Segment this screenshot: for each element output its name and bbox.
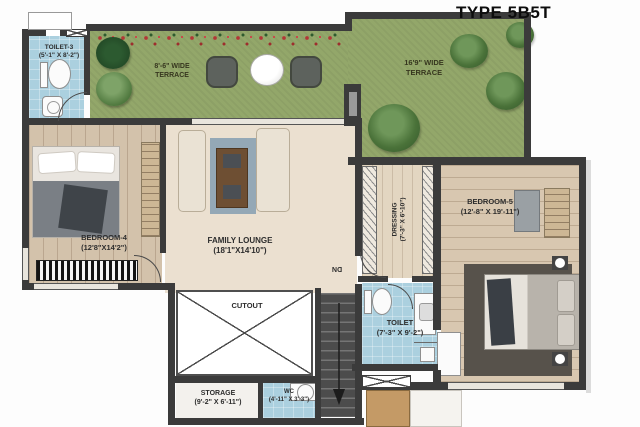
wall [345,12,352,29]
room-dims: (7'-3" X 6'-10") [400,183,408,255]
room-name: DRESSING [392,183,400,255]
room-name-2: TERRACE [386,68,462,78]
toilet-label: TOILET (7'-3" X 9'-2") [364,318,436,338]
basin-bowl [47,101,60,114]
room-name: BEDROOM-4 [50,233,158,243]
bedroom5-label: BEDROOM-5 (12'-8" X 19'-11") [442,197,538,217]
room-name: TOILET-3 [32,44,86,52]
wall [355,284,362,425]
terrace-chair-icon [206,56,238,88]
bedroom5-wardrobe-icon [544,188,570,238]
throw-blanket [487,278,516,346]
storage-label: STORAGE (9'-2" X 6'-11") [178,389,258,407]
plan-title: TYPE 5B5T [456,3,551,23]
room-name: STORAGE [178,389,258,398]
nightstand-icon [552,352,568,366]
pillow-icon [557,280,575,312]
room-name-2: TERRACE [138,71,206,80]
room-name: CUTOUT [210,301,284,311]
table-decor [223,185,241,199]
bedroom4-window [34,283,118,290]
room-dims: (5'-1" X 8'-2") [32,52,86,60]
wc-label: WC (4'-11" X 3'-3") [262,389,316,405]
shower-icon [420,347,435,362]
room-name: WC [262,389,316,397]
coffee-table-icon [216,148,248,208]
shaft-symbol [362,375,411,388]
pillow-icon [37,151,76,175]
wall [355,118,362,256]
duct-inner [349,92,357,116]
bush-icon [368,104,420,152]
bedroom4-bed-icon [32,146,120,238]
room-name: 16'9" WIDE [386,58,462,68]
pillow-icon [557,314,575,346]
room-dims: (4'-11" X 3'-3") [262,397,316,405]
family-lounge-label: FAMILY LOUNGE (18'1"X14'10") [184,236,296,257]
wall-shadow [586,160,591,393]
toilet-tank-icon [40,62,48,88]
ledge [28,12,72,30]
wall [86,24,352,31]
dressing-label: DRESSING (7'-3" X 6'-10") [392,183,409,255]
shower-divider [414,342,437,343]
potted-plant-icon [96,37,130,69]
room-dims: (12'-8" X 19'-11") [442,207,538,217]
room-dims: (12'8"X14'2") [50,243,158,253]
flower-bed [94,31,342,50]
staircase[interactable] [321,293,357,417]
room-dims: (7'-3" X 9'-2") [364,328,436,338]
throw-blanket [58,184,108,234]
stairs-dn-label: DN [328,264,346,273]
wall [348,157,586,165]
room-dims: (9'-2" X 6'-11") [178,398,258,407]
bedroom5-window [448,382,564,390]
entry-door-panel [366,390,410,427]
room-dims: (18'1"X14'10") [184,246,296,256]
wall [579,157,586,390]
lobby-floor [410,390,462,427]
terrace-left-label: 8'-6" WIDE TERRACE [138,62,206,80]
wall [168,283,175,425]
table-decor [223,154,241,168]
terrace-window [192,118,344,125]
toilet-bowl-icon [48,59,71,89]
bush-icon [486,72,526,110]
wall [433,370,441,384]
terrace-right-label: 16'9" WIDE TERRACE [386,58,462,78]
pillow-icon [76,151,115,174]
bedroom4-dresser-icon [36,260,138,281]
wall [352,364,438,371]
floor-plan: TYPE 5B5T TOILET-3 (5'-1" X 8'-2") 8'-6"… [0,0,640,427]
wall [168,376,320,383]
sofa-icon [256,128,290,212]
wall [524,12,531,162]
room-name: BEDROOM-5 [442,197,538,207]
room-name: TOILET [364,318,436,328]
toilet3-label: TOILET-3 (5'-1" X 8'-2") [32,44,86,61]
terrace-chair-icon [290,56,322,88]
room-name: 8'-6" WIDE [138,62,206,71]
lamp-icon [555,354,565,364]
bedroom4-wardrobe-icon [141,142,160,237]
toilet3-vent [46,29,60,36]
sofa-icon [178,130,206,212]
wall [433,157,441,330]
bedroom4-label: BEDROOM-4 (12'8"X14'2") [50,233,158,253]
wall [160,123,166,253]
bedroom5-bed-icon [484,274,580,350]
terrace-table-icon [250,54,284,86]
nightstand-icon [552,256,568,270]
potted-plant-icon [96,72,132,106]
toilet-tank-icon [364,290,372,314]
wall [84,29,90,95]
cutout-label: CUTOUT [210,301,284,311]
lamp-icon [555,258,565,268]
room-name: FAMILY LOUNGE [184,236,296,246]
down-arrow-icon [321,293,357,417]
wall [168,418,364,425]
shaft-symbol [66,29,88,37]
bedroom4-side-window [22,248,29,280]
